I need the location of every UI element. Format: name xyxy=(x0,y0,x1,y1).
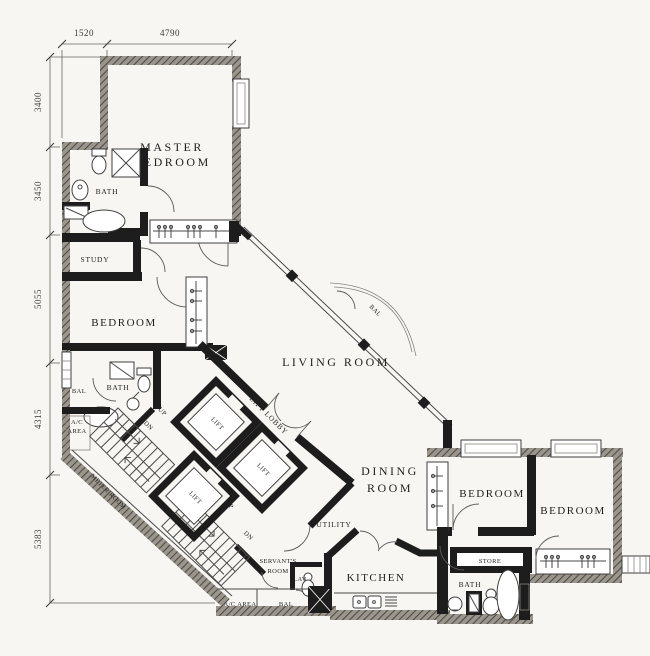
dim-left-3450: 3450 xyxy=(33,181,43,201)
label-stair-dn-lower: DN xyxy=(242,530,254,542)
mullion xyxy=(358,338,371,351)
dim-left-3400: 3400 xyxy=(33,92,43,112)
kitchen-sink-icon xyxy=(353,596,381,608)
master-bay-window xyxy=(233,79,249,128)
shower-icon xyxy=(112,149,140,177)
toilet-icon xyxy=(92,149,106,174)
floor-plan-drawing: 1520 4790 3400 3450 5055 4315 5383 xyxy=(0,0,650,656)
bedroom-left-wardrobe xyxy=(186,277,207,347)
label-stair-dn-upper: DN xyxy=(142,420,154,432)
study-area: STUDY xyxy=(80,240,165,276)
floor-plan-canvas: 1520 4790 3400 3450 5055 4315 5383 xyxy=(0,0,650,656)
label-store: STORE xyxy=(479,558,501,565)
label-balcony-living: BAL xyxy=(368,303,383,318)
label-dining-room-1: DINING xyxy=(361,464,419,478)
master-wardrobe xyxy=(150,220,239,243)
bedroom-mid-bay-window xyxy=(461,440,521,457)
label-bedroom-right: BEDROOM xyxy=(540,505,606,517)
label-bal-left: BAL xyxy=(72,388,86,395)
label-bath-left: BATH xyxy=(107,383,130,392)
mullion xyxy=(286,269,299,282)
label-lav: LAV xyxy=(293,576,307,583)
stove-icon xyxy=(385,597,397,606)
window-strip-right xyxy=(622,556,650,573)
label-bath-right: BATH xyxy=(459,580,482,589)
bathtub-icon xyxy=(497,570,519,620)
label-living-room: LIVING ROOM xyxy=(282,355,390,369)
label-servants-room-2: ROOM xyxy=(267,568,288,575)
basin-icon xyxy=(127,392,139,410)
label-bedroom-left: BEDROOM xyxy=(91,317,157,329)
dim-left-4315: 4315 xyxy=(33,409,43,429)
label-kitchen: KITCHEN xyxy=(347,572,406,584)
label-bal-bottom: BAL xyxy=(279,601,293,608)
mullion xyxy=(418,396,431,409)
dimension-lines-top: 1520 4790 xyxy=(58,28,236,138)
label-bedroom-mid: BEDROOM xyxy=(459,488,525,500)
bathtub-icon xyxy=(83,210,125,232)
toilet-icon xyxy=(137,368,151,392)
label-ac-left-2: AREA xyxy=(67,428,86,435)
label-meter-room: METER ROOM xyxy=(89,473,127,511)
label-study: STUDY xyxy=(80,255,109,264)
bath-left-area: BAL BATH A/C AREA xyxy=(62,350,161,458)
servant-area: SERVANT'S ROOM LAV A/C AREA BAL xyxy=(216,526,336,616)
store-shelf: STORE xyxy=(450,547,532,573)
label-master-bedroom-1: MASTER xyxy=(140,140,204,154)
bedroom-mid-wardrobe xyxy=(427,462,448,530)
bedroom-right-wardrobe xyxy=(536,549,610,574)
dim-left-5055: 5055 xyxy=(33,289,43,309)
bedroom-right-bay-window xyxy=(551,440,601,457)
label-ac-left-1: A/C xyxy=(71,419,83,426)
balcony-living: BAL xyxy=(330,283,416,356)
label-ac-area-bottom: A/C AREA xyxy=(224,601,257,608)
label-master-bath: BATH xyxy=(96,187,119,196)
shower-column-icon xyxy=(466,591,482,615)
dim-top-1520: 1520 xyxy=(74,28,94,38)
basin-icon xyxy=(72,180,88,200)
label-dining-room-2: ROOM xyxy=(367,481,413,495)
label-utility: UTILITY xyxy=(316,520,351,529)
kitchen-area: KITCHEN xyxy=(324,530,450,620)
dim-top-4790: 4790 xyxy=(160,28,180,38)
basin-icon xyxy=(448,597,462,611)
dim-left-5383: 5383 xyxy=(33,529,43,549)
